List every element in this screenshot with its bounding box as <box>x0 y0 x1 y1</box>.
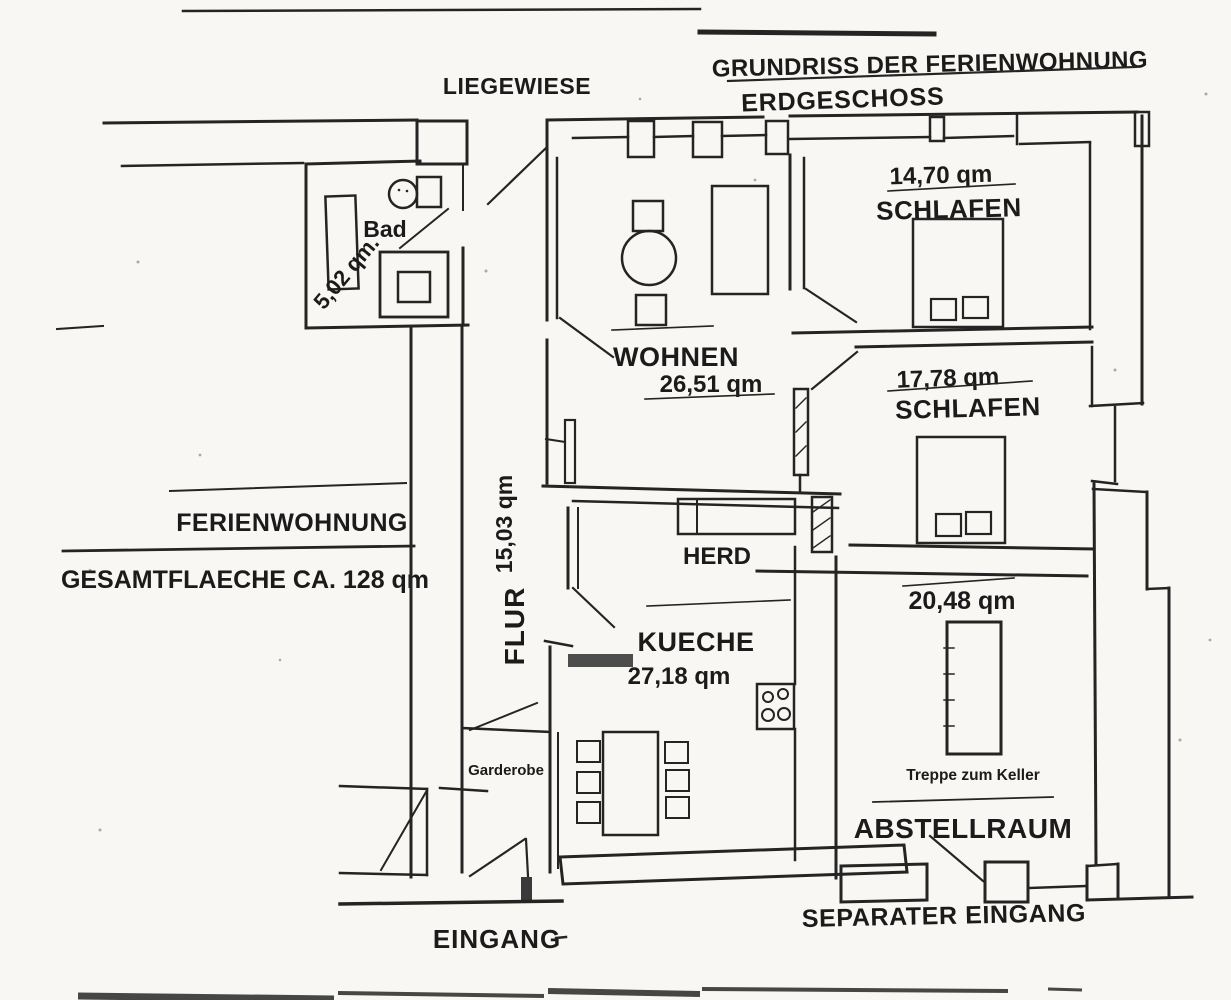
apartment-name-label: FERIENWOHNUNG <box>176 509 408 537</box>
bed-icon <box>917 437 1005 543</box>
east-wall <box>1090 116 1169 897</box>
page-title: GRUNDRISS DER FERIENWOHNUNG <box>712 46 1149 82</box>
window-pillar-icon <box>693 122 722 157</box>
room-schlafen-1: 14,70 qm SCHLAFEN <box>876 143 1090 329</box>
room-bad: Bad 5,02 qm. <box>306 121 546 328</box>
herd-label: HERD <box>683 543 751 570</box>
treppe-zum-keller-label: Treppe zum Keller <box>906 767 1040 784</box>
room-area-kueche: 27,18 qm <box>628 663 731 690</box>
room-area-abstellraum: 20,48 qm <box>908 587 1015 615</box>
round-table-icon <box>622 231 676 285</box>
window-pillar-icon <box>628 121 654 157</box>
scanned-floor-plan-page: GRUNDRISS DER FERIENWOHNUNG ERDGESCHOSS … <box>0 0 1231 1000</box>
shower-icon <box>380 252 448 317</box>
room-label-abstellraum: ABSTELLRAUM <box>854 813 1073 844</box>
abstellraum-divider-wall <box>757 545 1094 576</box>
room-label-wohnen: WOHNEN <box>613 342 739 372</box>
separater-eingang-label: SEPARATER EINGANG <box>802 899 1087 933</box>
room-area-flur: 15,03 qm <box>491 475 517 573</box>
page-subtitle: ERDGESCHOSS <box>741 82 945 117</box>
bad-walls <box>306 121 546 328</box>
north-wall <box>547 112 1149 157</box>
apartment-info: FERIENWOHNUNG GESAMTFLAECHE CA. 128 qm <box>61 483 429 594</box>
floor-plan-canvas: GRUNDRISS DER FERIENWOHNUNG ERDGESCHOSS … <box>0 0 1231 1000</box>
dining-table-icon <box>577 732 689 835</box>
room-area-wohnen: 26,51 qm <box>660 371 763 398</box>
room-label-schlafen-2: SCHLAFEN <box>895 391 1041 425</box>
room-label-kueche: KUECHE <box>637 627 754 657</box>
garderobe-label: Garderobe <box>468 762 544 779</box>
liegewiese-label: LIEGEWIESE <box>443 73 591 99</box>
room-area-bad: 5,02 qm. <box>308 230 384 314</box>
entry-steps <box>340 786 427 875</box>
room-kueche: HERD KUECHE 27,18 qm <box>543 486 840 878</box>
cabinet-icon <box>712 186 768 294</box>
eingang-label: EINGANG <box>433 924 561 954</box>
flur-walls <box>545 340 614 646</box>
chimney-hatch <box>812 497 832 552</box>
outer-west-wall <box>411 328 462 877</box>
room-wohnen: WOHNEN 26,51 qm <box>547 122 856 399</box>
total-area-label: GESAMTFLAECHE CA. 128 qm <box>61 566 429 594</box>
south-wall-entrances: EINGANG SEPARATER EINGANG <box>340 786 1192 954</box>
bed-icon <box>913 219 1003 327</box>
stool-icon <box>636 295 666 325</box>
stool-icon <box>633 201 663 231</box>
room-label-schlafen-1: SCHLAFEN <box>876 192 1022 226</box>
room-schlafen-2: 17,78 qm SCHLAFEN <box>794 347 1092 543</box>
room-label-flur: FLUR <box>499 587 530 666</box>
bedroom-divider-wall <box>793 327 1092 347</box>
stove-icon <box>757 684 794 729</box>
stairs-icon <box>944 622 1001 754</box>
garderobe-niche: Garderobe <box>440 703 550 791</box>
window-pillar-icon <box>766 121 788 154</box>
title-block: GRUNDRISS DER FERIENWOHNUNG ERDGESCHOSS <box>712 46 1149 117</box>
window-pillar-icon <box>930 117 944 141</box>
eingang-door <box>470 839 532 903</box>
room-abstellraum: 20,48 qm Treppe zum Keller ABSTELLRAUM <box>854 578 1073 844</box>
door-threshold <box>568 654 633 667</box>
toilet-icon <box>389 177 441 208</box>
